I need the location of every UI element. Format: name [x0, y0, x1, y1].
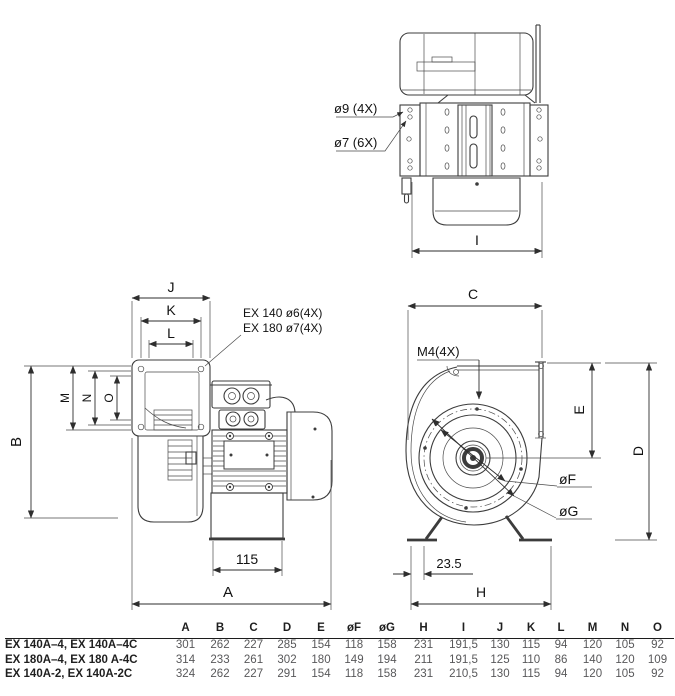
table-cell: 158: [370, 668, 404, 683]
model-name: EX 140A-2, EX 140A-2C: [5, 668, 168, 683]
dim-e: E: [547, 363, 601, 458]
table-header-O: O: [641, 622, 674, 638]
thread-callout-label: M4(4X): [417, 344, 460, 359]
table-cell: 92: [641, 638, 674, 653]
table-header-øF: øF: [338, 622, 370, 638]
dim-a-label: A: [223, 584, 233, 601]
table-cell: 233: [203, 653, 237, 668]
dim-c: C: [408, 286, 542, 440]
dim-c-label: C: [468, 286, 478, 302]
top-view: ø9 (4X) ø7 (6X) I: [334, 25, 548, 258]
table-cell: 191,5: [443, 638, 484, 653]
table-cell: 120: [576, 638, 609, 653]
dim-n-label: N: [80, 394, 94, 403]
table-cell: 115: [516, 638, 546, 653]
table-cell: 86: [546, 653, 576, 668]
top-view-motor: [400, 103, 548, 176]
table-cell: 231: [404, 638, 443, 653]
dim-l: L: [149, 325, 193, 358]
dim-l-label: L: [167, 325, 175, 341]
table-cell: 105: [609, 638, 641, 653]
table-header-I: I: [443, 622, 484, 638]
dim-g: øG: [432, 419, 592, 519]
table-cell: 105: [609, 668, 641, 683]
hole-callout-large-label: ø9 (4X): [334, 101, 377, 116]
hole-callout-large: ø9 (4X): [334, 101, 403, 117]
dim-d: D: [605, 363, 657, 540]
dim-b: B: [8, 366, 118, 518]
table-cell: 130: [484, 638, 516, 653]
table-cell: 301: [168, 638, 203, 653]
side-view-scroll: [138, 436, 212, 522]
dim-i-label: I: [475, 232, 479, 248]
table-cell: 125: [484, 653, 516, 668]
flange-hole-callout-line2: EX 180 ø7(4X): [243, 321, 322, 335]
table-cell: 120: [576, 668, 609, 683]
table-cell: 262: [203, 638, 237, 653]
table-cell: 210,5: [443, 668, 484, 683]
table-header-H: H: [404, 622, 443, 638]
table-cell: 302: [270, 653, 304, 668]
front-view: C M4(4X) E D øF: [393, 286, 657, 610]
table-cell: 92: [641, 668, 674, 683]
table-cell: 154: [304, 668, 338, 683]
dim-b-label: B: [8, 437, 25, 447]
table-cell: 109: [641, 653, 674, 668]
table-cell: 94: [546, 668, 576, 683]
top-view-endcap: [402, 178, 520, 225]
dim-e-label: E: [571, 405, 587, 414]
table-header-N: N: [609, 622, 641, 638]
table-cell: 227: [237, 668, 270, 683]
dimension-table: ABCDEøFøGHIJKLMNO EX 140A–4, EX 140A–4C3…: [5, 622, 674, 682]
table-header-B: B: [203, 622, 237, 638]
table-header-E: E: [304, 622, 338, 638]
dim-o: O: [102, 376, 131, 420]
table-cell: 130: [484, 668, 516, 683]
front-view-feet: [407, 516, 552, 540]
dim-j-label: J: [168, 279, 175, 295]
table-cell: 118: [338, 668, 370, 683]
flange-hole-callout-line1: EX 140 ø6(4X): [243, 306, 322, 320]
table-header-D: D: [270, 622, 304, 638]
dim-d-label: D: [630, 446, 646, 456]
dim-i: I: [412, 182, 542, 258]
dim-235: 23.5: [393, 546, 473, 580]
table-row: EX 180A–4, EX 180 A-4C314233261302180149…: [5, 653, 674, 668]
table-header-M: M: [576, 622, 609, 638]
side-view: J K L EX 140 ø6(4X) EX 180 ø7(4X) M: [8, 279, 332, 610]
table-cell: 158: [370, 638, 404, 653]
table-header-A: A: [168, 622, 203, 638]
table-cell: 324: [168, 668, 203, 683]
top-view-flange-bar: [536, 25, 540, 103]
table-cell: 110: [516, 653, 546, 668]
table-row: EX 140A–4, EX 140A–4C3012622272851541181…: [5, 638, 674, 653]
table-row: EX 140A-2, EX 140A-2C3242622272911541181…: [5, 668, 674, 683]
table-cell: 291: [270, 668, 304, 683]
table-cell: 194: [370, 653, 404, 668]
table-cell: 262: [203, 668, 237, 683]
table-header-K: K: [516, 622, 546, 638]
dim-115-label: 115: [236, 551, 259, 567]
dim-235-label: 23.5: [436, 556, 461, 571]
dim-m-label: M: [58, 393, 72, 403]
table-cell: 191,5: [443, 653, 484, 668]
hole-callout-small: ø7 (6X): [334, 121, 406, 151]
table-cell: 149: [338, 653, 370, 668]
model-name: EX 180A–4, EX 180 A-4C: [5, 653, 168, 668]
table-header-L: L: [546, 622, 576, 638]
table-cell: 120: [609, 653, 641, 668]
table-cell: 180: [304, 653, 338, 668]
front-view-inlet: [419, 404, 601, 512]
table-cell: 154: [304, 638, 338, 653]
dim-k-label: K: [166, 302, 176, 318]
dim-115: 115: [213, 541, 282, 576]
dim-g-label: øG: [559, 503, 578, 519]
top-view-housing: [400, 33, 533, 95]
table-header-C: C: [237, 622, 270, 638]
dim-h: H: [411, 546, 551, 610]
table-corner-cell: [5, 622, 168, 638]
table-header-row: ABCDEøFøGHIJKLMNO: [5, 622, 674, 638]
fan-dimension-drawing: ø9 (4X) ø7 (6X) I: [0, 0, 675, 696]
dim-j: J: [132, 279, 210, 358]
table-cell: 140: [576, 653, 609, 668]
table-cell: 231: [404, 668, 443, 683]
table-cell: 94: [546, 638, 576, 653]
table-header-øG: øG: [370, 622, 404, 638]
drawing-canvas: ø9 (4X) ø7 (6X) I: [0, 0, 675, 620]
table-cell: 261: [237, 653, 270, 668]
table-cell: 115: [516, 668, 546, 683]
flange-hole-callout: EX 140 ø6(4X) EX 180 ø7(4X): [205, 306, 322, 366]
side-view-motor: [209, 381, 332, 539]
table-header-J: J: [484, 622, 516, 638]
table-cell: 227: [237, 638, 270, 653]
table-cell: 211: [404, 653, 443, 668]
table-cell: 118: [338, 638, 370, 653]
model-name: EX 140A–4, EX 140A–4C: [5, 638, 168, 653]
side-view-flange: [132, 360, 210, 436]
dim-h-label: H: [476, 584, 486, 600]
table-cell: 285: [270, 638, 304, 653]
dim-o-label: O: [102, 393, 116, 402]
dim-f-label: øF: [559, 471, 576, 487]
table-cell: 314: [168, 653, 203, 668]
hole-callout-small-label: ø7 (6X): [334, 135, 377, 150]
